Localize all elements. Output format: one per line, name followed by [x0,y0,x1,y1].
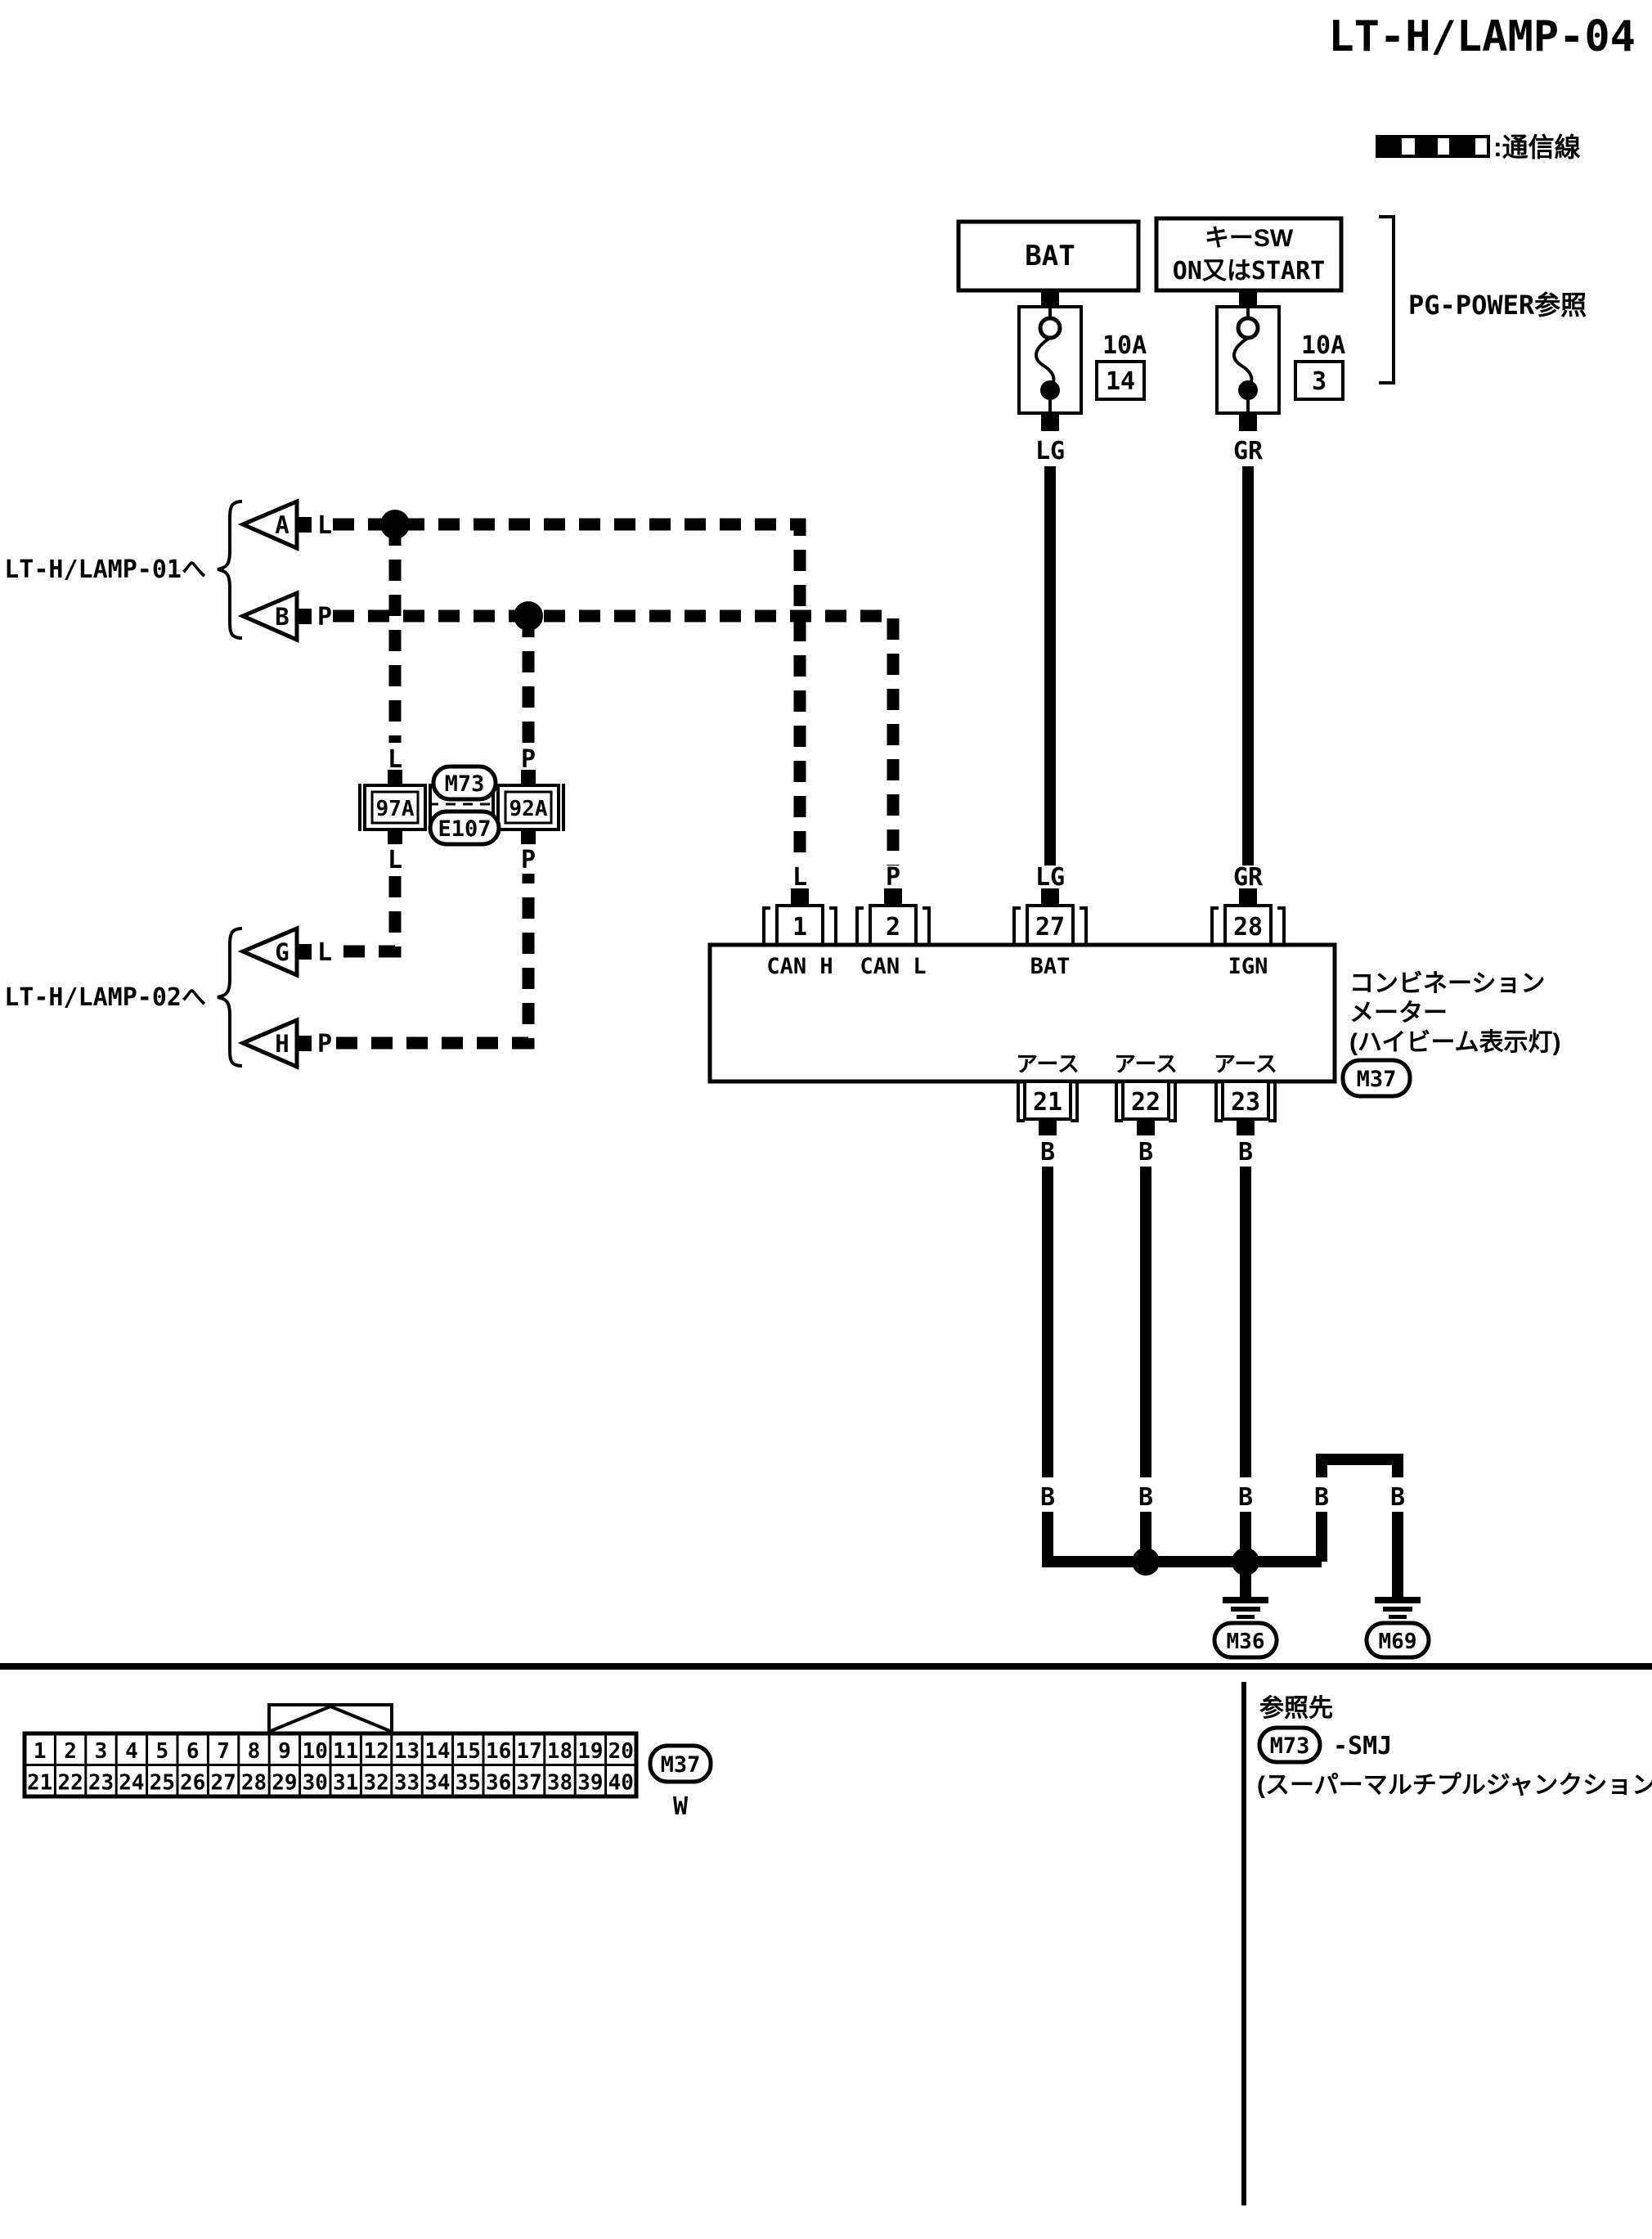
wire-stub [1239,413,1257,431]
fuse-terminal-filled [1238,380,1258,400]
connector-table-grid [25,1733,636,1796]
can-h-branch-wire [333,524,395,951]
junction-dot [514,601,543,631]
connector-pin-cell: 11 [333,1739,358,1764]
ground-function-label: アース [1214,1052,1277,1077]
connector-pin-cell: 21 [27,1771,52,1796]
connector-pin-cell: 31 [333,1771,358,1796]
connector-code: M73 [445,771,485,797]
connector-pin-cell: 18 [547,1739,572,1764]
fuse-1: 10A 14 LG [1019,289,1147,465]
wire-color-label: LG [1035,863,1065,892]
header: LT-H/LAMP-04 :通信線 [1328,12,1636,162]
connector-pin: 97A [376,797,415,821]
ground-bar-1 [1223,1597,1268,1603]
connector-pin-cell: 29 [272,1771,297,1796]
reference-divider [1241,1682,1246,2205]
ground-wire-21 [1048,1167,1322,1562]
connector-pin-cell: 4 [125,1739,138,1764]
ground-function-label: アース [1114,1052,1178,1077]
wire-stub [521,830,536,846]
meter-pin-22: 22 B [1116,1081,1175,1167]
wire-color-label: P [317,603,332,632]
combination-meter: L P LG GR 1 2 27 28 [710,863,1560,1167]
triangle-letter: A [275,511,289,539]
pin-number: 2 [886,913,900,942]
lamp02-ref: LT-H/LAMP-02へ [4,983,206,1012]
pin-number: 28 [1233,913,1263,942]
pin-number: 22 [1131,1088,1160,1117]
wire-color-label: B [1138,1483,1153,1512]
reference-code: M73 [1270,1733,1310,1759]
connector-key-tab [269,1705,392,1733]
connector-pin-cell: 15 [456,1739,481,1764]
connector-pin-cell: 33 [394,1771,420,1796]
meter-name-line3: (ハイビーム表示灯) [1349,1029,1560,1056]
wire-stub [1137,1119,1155,1135]
connector-pin-cell: 36 [486,1771,511,1796]
junction-dot [1232,1548,1259,1576]
pg-power-bracket [1379,217,1394,383]
meter-name-line2: メーター [1349,1000,1448,1027]
connector-pin-cell: 23 [88,1771,114,1796]
key-sw-line2: ON又はSTART [1173,257,1325,285]
meter-pin-2: 2 [857,888,929,945]
triangle-letter: G [275,938,289,966]
wire-stub [791,888,809,906]
pin-function: BAT [1030,954,1071,979]
connector-table-inner-lines [25,1733,636,1796]
connector-pin-cell: 16 [486,1739,511,1764]
connector-pin-cell: 3 [95,1739,108,1764]
wire-color-label: B [1314,1483,1329,1512]
brace [218,501,242,638]
connector-triangle-g: G L [243,928,332,975]
connector-pin-cell: 38 [547,1771,572,1796]
fuse-number: 3 [1312,367,1327,396]
connector-pin: 92A [510,797,548,821]
junction-dot [1132,1548,1160,1576]
connector-pin-cell: 12 [363,1739,388,1764]
pin-function: IGN [1228,954,1268,979]
fuse-2: 10A 3 GR [1217,289,1345,465]
wire-color-label: P [521,846,536,874]
smj-connector-92a: P 92A P [493,743,563,874]
connector-pin-cell: 19 [577,1739,603,1764]
ground-bar-3 [1237,1615,1255,1619]
reference-note: (スーパーマルチプルジャンクション) [1257,1772,1652,1799]
pin-number: 21 [1033,1088,1062,1117]
ground-code: M36 [1227,1630,1265,1654]
connector-pin-cell: 1 [34,1739,47,1764]
meter-connector-code: M37 [1357,1067,1397,1092]
pin-function: CAN H [766,954,833,979]
legend-swatch-seg [1415,138,1438,155]
connector-pin-cell: 26 [180,1771,205,1796]
ground-bar-2 [1383,1607,1412,1612]
meter-pin-23: 23 B [1216,1081,1275,1167]
connector-color: W [673,1792,689,1821]
wire-color-label: B [1390,1483,1405,1512]
ground-network: B B B B B M36 M69 [1035,1167,1429,1657]
wire-stub [1039,1119,1057,1135]
wiring-diagram-page: LT-H/LAMP-04 :通信線 BAT キーSW ON又はSTART 10A… [0,0,1652,2239]
meter-pin-28: 28 [1212,888,1284,945]
connector-pin-cell: 20 [608,1739,634,1764]
wire-stub [297,517,312,533]
connector-pin-cell: 35 [456,1771,481,1796]
wire-color-label: B [1040,1138,1055,1167]
ground-bar-2 [1231,1607,1260,1612]
legend-label: :通信線 [1493,133,1581,162]
reference-suffix: -SMJ [1333,1732,1392,1760]
connector-pin-cell: 2 [64,1739,77,1764]
wire-stub [297,609,312,624]
legend-swatch-seg [1449,138,1475,155]
connector-pin-cell: 13 [394,1739,420,1764]
meter-name-line1: コンビネーション [1349,970,1545,997]
wire-color-label: L [388,846,402,874]
smj-connector-97a: L 97A L [360,743,430,874]
wire-stub [1237,1119,1255,1135]
wire-stub [1239,289,1257,307]
wire-stub [884,888,902,906]
ground-symbol-m36: M36 [1214,1597,1277,1657]
connector-pin-cell: 34 [424,1771,450,1796]
bat-supply-label: BAT [1025,240,1075,272]
connector-pin-cell: 27 [210,1771,236,1796]
ground-symbol-m69: M69 [1367,1597,1429,1657]
connector-pin-cell: 40 [608,1771,634,1796]
legend-swatch-seg [1379,138,1402,155]
connector-triangle-b: B P [243,593,332,640]
connector-pin-cell: 14 [424,1739,450,1764]
connector-pin-cell: 8 [248,1739,261,1764]
wire-color-label: B [1238,1483,1253,1512]
connector-pin-cell: 28 [241,1771,267,1796]
ground-bar-3 [1389,1615,1407,1619]
connector-triangle-h: H P [243,1020,332,1067]
pin-function: CAN L [860,954,926,979]
connector-pin-cell: 10 [303,1739,328,1764]
power-section: BAT キーSW ON又はSTART 10A 14 LG [958,217,1587,865]
connector-pin-cell: 24 [119,1771,144,1796]
ground-code: M69 [1379,1630,1417,1654]
connector-pin-cell: 6 [186,1739,200,1764]
meter-pin-21: 21 B [1018,1081,1077,1167]
wire-color-label: B [1238,1138,1253,1167]
wire-stub [1041,289,1059,307]
separator-line [0,1663,1652,1670]
connector-pin-cell: 17 [516,1739,541,1764]
wire-color-label: GR [1233,437,1264,465]
connector-triangle-a: A L [243,501,332,548]
junction-dot [380,510,410,539]
connector-pin-cell: 5 [155,1739,168,1764]
legend: :通信線 [1377,133,1581,162]
wire-color-label: B [1138,1138,1153,1167]
wire-stub [1041,413,1059,431]
reference-heading: 参照先 [1259,1695,1333,1722]
wire-color-label: B [1040,1483,1055,1512]
pin-number: 23 [1231,1088,1260,1117]
fuse-terminal-filled [1040,380,1060,400]
reference-block: 参照先 M73 -SMJ (スーパーマルチプルジャンクション) [1241,1682,1652,2205]
ground-bar-1 [1375,1597,1421,1603]
fuse-number: 14 [1106,367,1135,396]
page-title: LT-H/LAMP-04 [1328,12,1636,61]
connector-pin-cell: 22 [57,1771,83,1796]
wire-stub [388,830,402,846]
wire-color-label: L [317,511,332,540]
pin-number: 27 [1035,913,1065,942]
fuse-rating: 10A [1301,331,1345,360]
connector-pin-cell: 37 [516,1771,541,1796]
brace [218,928,242,1066]
triangle-letter: B [275,603,289,631]
wire-color-label: P [317,1030,332,1059]
connector-pin-cell: 25 [150,1771,175,1796]
meter-pin-1: 1 [764,888,836,945]
pg-power-ref: PG-POWER参照 [1408,290,1587,321]
pin-number: 1 [792,913,807,942]
footer: 1234567891011121314151617181920212223242… [0,1663,1652,2205]
wire-stub [297,944,312,960]
triangle-letter: H [275,1030,289,1058]
connector-pin-cell: 39 [577,1771,603,1796]
wire-color-label: P [521,745,536,774]
connector-pin-cell: 9 [278,1739,291,1764]
fuse-terminal-open [1040,318,1060,338]
connector-pin-cell: 30 [303,1771,328,1796]
connector-code: M37 [661,1752,701,1778]
fuse-terminal-open [1238,318,1258,338]
key-sw-line1: キーSW [1205,225,1294,252]
connector-pin-cell: 32 [363,1771,388,1796]
wire-color-label: GR [1233,863,1264,892]
connector-face-view: 1234567891011121314151617181920212223242… [25,1705,711,1821]
wire-color-label: P [886,863,900,892]
fuse-rating: 10A [1102,331,1147,360]
wire-stub [297,1036,312,1051]
lamp01-ref: LT-H/LAMP-01へ [4,555,206,584]
wire-stub [1041,888,1059,906]
wire-color-label: L [792,863,807,892]
connector-pin-cell: 7 [217,1739,230,1764]
wire-color-label: L [388,745,402,774]
wire-stub [1239,888,1257,906]
wire-color-label: L [317,938,332,967]
ground-function-label: アース [1016,1052,1080,1077]
meter-pin-27: 27 [1014,888,1086,945]
wire-color-label: LG [1035,437,1065,465]
ground-wire-labels: B B B B B [1035,1477,1411,1512]
connector-code: E107 [438,816,491,842]
